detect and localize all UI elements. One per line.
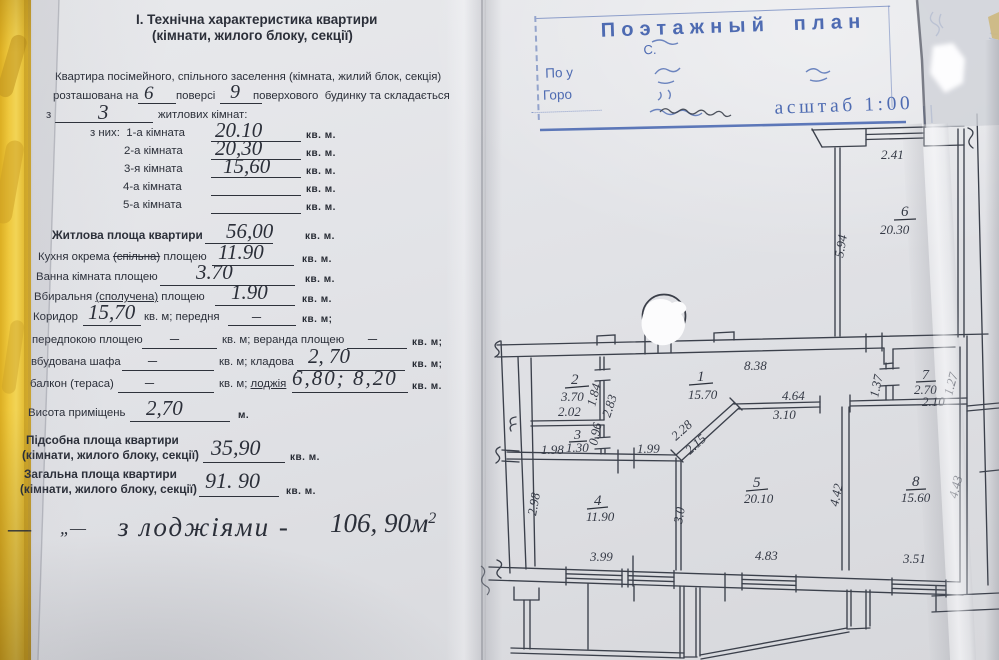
svg-text:5: 5	[753, 475, 761, 491]
svg-text:3.99: 3.99	[589, 549, 613, 564]
svg-text:1.84: 1.84	[583, 381, 604, 407]
svg-text:4.42: 4.42	[826, 482, 846, 508]
svg-text:1.99: 1.99	[637, 441, 660, 456]
svg-text:1: 1	[697, 369, 705, 385]
svg-text:8.38: 8.38	[744, 358, 767, 373]
svg-text:2.02: 2.02	[558, 404, 581, 419]
svg-text:1.98: 1.98	[541, 442, 564, 457]
svg-text:2.98: 2.98	[524, 491, 543, 517]
svg-text:3.70: 3.70	[560, 389, 584, 404]
svg-text:2.41: 2.41	[881, 147, 904, 162]
svg-text:4.64: 4.64	[782, 388, 805, 403]
svg-text:4.83: 4.83	[755, 548, 778, 563]
svg-text:1.37: 1.37	[866, 373, 886, 399]
svg-text:5.94: 5.94	[831, 233, 850, 259]
svg-text:3.51: 3.51	[902, 551, 926, 566]
svg-text:4: 4	[594, 493, 602, 509]
svg-text:2.83: 2.83	[599, 392, 620, 419]
svg-text:11.90: 11.90	[586, 509, 615, 524]
svg-text:2: 2	[571, 372, 579, 388]
svg-text:20.10: 20.10	[744, 491, 774, 506]
svg-text:3.0: 3.0	[670, 505, 688, 525]
svg-text:15.70: 15.70	[688, 387, 718, 402]
svg-text:20.30: 20.30	[880, 222, 910, 237]
svg-text:8: 8	[912, 474, 920, 490]
svg-text:3.10: 3.10	[772, 407, 796, 422]
